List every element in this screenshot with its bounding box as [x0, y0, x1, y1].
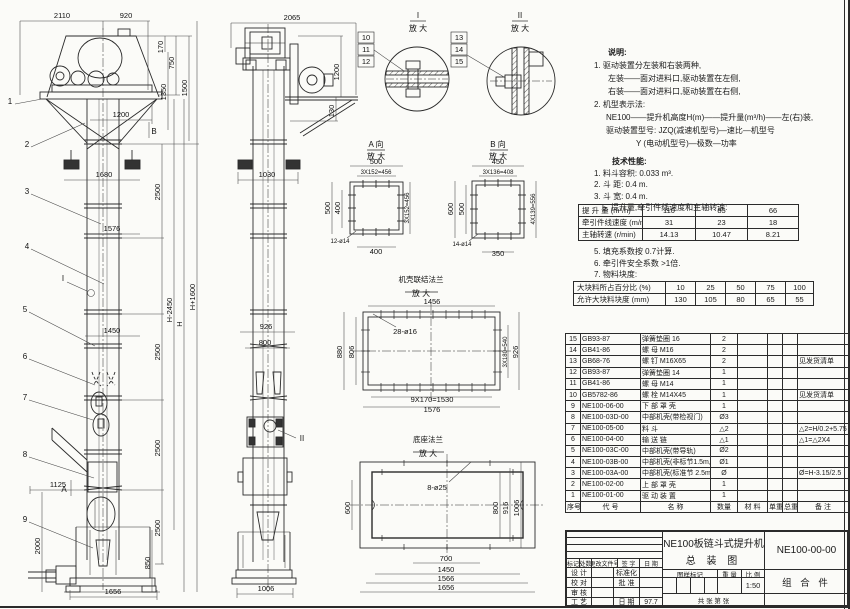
title-block: 标记 处数 更改文件号 签 字 日 期 设 计 标准化 校 对 批 准 审 核 … — [565, 530, 848, 606]
svg-text:400: 400 — [333, 202, 342, 215]
table-cell: 允许大块料块度 (mm) — [574, 294, 666, 306]
table-row: 10GB5782-86螺 栓 M14X451见发货清单 — [566, 389, 849, 400]
svg-text:600: 600 — [343, 502, 352, 515]
svg-text:14: 14 — [455, 45, 463, 54]
table-cell: NE100-01-00 — [581, 490, 641, 501]
note-line: 2. 机型表示法: — [572, 98, 813, 111]
table-cell: 弹簧垫圈 14 — [641, 367, 711, 378]
table-cell — [798, 412, 849, 423]
svg-text:1006: 1006 — [512, 500, 521, 517]
note-line: 右装——面对进料口,驱动装置在右侧, — [572, 85, 813, 98]
svg-text:450: 450 — [492, 157, 505, 166]
table-cell — [738, 345, 768, 356]
svg-text:750: 750 — [167, 57, 176, 70]
svg-text:400: 400 — [370, 247, 383, 256]
table-cell — [738, 457, 768, 468]
svg-text:2110: 2110 — [54, 11, 70, 20]
svg-text:1656: 1656 — [438, 583, 455, 592]
table-cell — [768, 345, 783, 356]
svg-text:12: 12 — [362, 57, 370, 66]
table-row: 主轴转速 (r/min)14.1310.478.21 — [579, 229, 799, 241]
table-cell: 105 — [696, 294, 726, 306]
table-cell: 9 — [566, 401, 581, 412]
svg-text:I: I — [62, 274, 64, 283]
col-header: 总重 — [783, 501, 798, 512]
svg-text:1200: 1200 — [113, 110, 130, 119]
table-cell — [798, 367, 849, 378]
svg-text:13: 13 — [455, 33, 463, 42]
table-cell: 14.13 — [643, 229, 696, 241]
table-row: 1NE100-01-00驱 动 装 置1 — [566, 490, 849, 501]
table-cell: 下 部 罩 壳 — [641, 401, 711, 412]
specs-heading: 技术性能: — [572, 156, 727, 168]
table-cell: Ø3 — [711, 412, 738, 423]
table-cell: 18 — [748, 217, 799, 229]
table-row: 提 升 量 (m³/h)1108566 — [579, 205, 799, 217]
col-header: 名 称 — [641, 501, 711, 512]
svg-text:130: 130 — [327, 105, 336, 118]
table-cell — [783, 479, 798, 490]
table-cell: 中部机壳(带检视门) — [641, 412, 711, 423]
speed-table: 提 升 量 (m³/h)1108566牵引件线速度 (m/min)312318主… — [578, 204, 799, 241]
table-cell: 螺 母 M14 — [641, 378, 711, 389]
table-cell: 中部机壳(标准节 2.5m) — [641, 468, 711, 479]
table-row: 13GB68-76螺 钉 M16X652见发货清单 — [566, 356, 849, 367]
svg-text:A 向: A 向 — [368, 139, 383, 149]
sheet-border-bottom — [0, 606, 850, 608]
table-cell: 2 — [711, 334, 738, 345]
svg-text:500: 500 — [323, 202, 332, 215]
stamp-box — [690, 577, 705, 594]
table-cell — [738, 367, 768, 378]
table-cell — [783, 412, 798, 423]
col-header: 代 号 — [581, 501, 641, 512]
note-line: 5. 填充系数按 0.7计算. — [594, 246, 680, 258]
table-cell: 主轴转速 (r/min) — [579, 229, 643, 241]
note-line: 驱动装置型号: JZQ(减速机型号)—速比—机型号 — [572, 124, 813, 137]
view-b-labels: B 向 放 大 450 3X136=408 600 500 4X139=556 … — [446, 139, 537, 258]
table-cell: 弹簧垫圈 16 — [641, 334, 711, 345]
svg-text:806: 806 — [347, 346, 356, 359]
table-cell: 1 — [711, 389, 738, 400]
svg-text:3X180=540: 3X180=540 — [503, 336, 509, 368]
svg-text:3X152=456: 3X152=456 — [405, 192, 411, 224]
table-cell: GB68-76 — [581, 356, 641, 367]
svg-text:B: B — [151, 127, 156, 136]
table-cell: 1 — [711, 401, 738, 412]
table-cell: 中部机壳(非标节1.5m,1m) — [641, 457, 711, 468]
svg-text:5: 5 — [23, 305, 28, 314]
table-cell: 13 — [566, 356, 581, 367]
table-cell — [768, 468, 783, 479]
table-cell: GB41-86 — [581, 345, 641, 356]
table-cell: 螺 母 M16 — [641, 345, 711, 356]
table-cell: 11 — [566, 378, 581, 389]
table-row: 6NE100-04-00输 送 链△1△1=△2X4 — [566, 434, 849, 445]
note-line: Y (电动机型号)—极数—功率 — [572, 137, 813, 150]
table-cell — [798, 457, 849, 468]
parts-list-table: 15GB93-87弹簧垫圈 16214GB41-86螺 母 M16213GB68… — [565, 333, 849, 513]
svg-text:350: 350 — [492, 249, 505, 258]
table-cell — [783, 457, 798, 468]
table-cell — [783, 434, 798, 445]
product-name: NE100板链斗式提升机 — [663, 535, 764, 550]
svg-text:放 大: 放 大 — [419, 448, 437, 458]
table-row: 11GB41-86螺 母 M141 — [566, 378, 849, 389]
svg-text:10: 10 — [362, 33, 370, 42]
table-cell — [798, 401, 849, 412]
svg-text:1576: 1576 — [104, 224, 121, 233]
svg-text:800: 800 — [259, 338, 272, 347]
table-cell: 130 — [666, 294, 696, 306]
svg-text:4: 4 — [25, 242, 30, 251]
stamp-box — [704, 577, 718, 594]
table-row: 14GB41-86螺 母 M162 — [566, 345, 849, 356]
table-cell: 2 — [711, 356, 738, 367]
table-cell: 50 — [726, 282, 756, 294]
table-cell: 31 — [643, 217, 696, 229]
detail-i-labels: I 放 大 10 11 12 — [362, 11, 427, 66]
note-line: 7. 物料块度: — [594, 269, 680, 281]
table-cell — [738, 389, 768, 400]
drawing-number: NE100-00-00 — [764, 531, 849, 570]
side-view-linework — [232, 24, 358, 592]
svg-text:1450: 1450 — [104, 326, 121, 335]
table-cell — [783, 378, 798, 389]
svg-text:1030: 1030 — [259, 170, 276, 179]
table-row: 3NE100-03A-00中部机壳(标准节 2.5m)ØØ=H-3.15/2.5 — [566, 468, 849, 479]
table-cell — [738, 401, 768, 412]
table-cell: 23 — [696, 217, 748, 229]
table-cell — [768, 412, 783, 423]
svg-text:3: 3 — [25, 187, 30, 196]
svg-text:14-ø14: 14-ø14 — [452, 242, 472, 248]
table-cell — [783, 401, 798, 412]
table-cell — [798, 490, 849, 501]
table-cell: GB5782-86 — [581, 389, 641, 400]
table-cell: NE100-05-00 — [581, 423, 641, 434]
svg-text:放 大: 放 大 — [511, 23, 529, 33]
svg-text:700: 700 — [440, 554, 453, 563]
table-cell — [768, 389, 783, 400]
table-cell: 中部机壳(带导轨) — [641, 445, 711, 456]
svg-text:28-ø16: 28-ø16 — [393, 327, 417, 336]
lump-size-table: 大块料所占百分比 (%)10255075100允许大块料块度 (mm)13010… — [573, 281, 814, 306]
table-cell — [738, 356, 768, 367]
spec-line: 2. 斗 距: 0.4 m. — [572, 179, 727, 191]
svg-text:7: 7 — [23, 393, 28, 402]
table-cell: Ø=H-3.15/2.5 — [798, 468, 849, 479]
table-cell: 牵引件线速度 (m/min) — [579, 217, 643, 229]
table-cell: 15 — [566, 334, 581, 345]
col-header: 备 注 — [798, 501, 849, 512]
table-cell — [768, 457, 783, 468]
table-cell — [783, 356, 798, 367]
svg-text:926: 926 — [260, 322, 273, 331]
table-cell: 螺 栓 M14X45 — [641, 389, 711, 400]
front-view-balloons: 1 2 3 4 5 6 7 8 9 — [8, 97, 30, 524]
table-cell — [768, 479, 783, 490]
svg-text:4X139=556: 4X139=556 — [531, 193, 537, 225]
table-cell: Ø1 — [711, 457, 738, 468]
table-cell — [798, 378, 849, 389]
sheet-border-right — [844, 0, 845, 609]
table-cell: 1 — [711, 479, 738, 490]
empty-cell — [764, 593, 849, 607]
table-cell: 10 — [666, 282, 696, 294]
table-cell: 100 — [786, 282, 814, 294]
svg-text:920: 920 — [120, 11, 133, 20]
table-cell: NE100-03D-00 — [581, 412, 641, 423]
svg-text:1350: 1350 — [159, 84, 168, 101]
drawing-sheet: 2110 920 170 750 1350 1500 1200 1680 157… — [0, 0, 850, 609]
spec-line: 3. 斗 宽: 0.4 m. — [572, 191, 727, 203]
svg-text:底座法兰: 底座法兰 — [413, 434, 443, 444]
note-line: 6. 牵引件安全系数 >1倍. — [594, 258, 680, 270]
svg-text:15: 15 — [455, 57, 463, 66]
table-cell — [738, 423, 768, 434]
table-cell: 65 — [756, 294, 786, 306]
svg-text:850: 850 — [143, 557, 152, 570]
table-cell — [768, 378, 783, 389]
table-cell: △1=△2X4 — [798, 434, 849, 445]
view-a-labels: A 向 放 大 500 3X152=456 500 400 3X152=456 … — [323, 139, 411, 256]
svg-text:3X152=456: 3X152=456 — [361, 170, 393, 176]
table-cell: NE100-06-00 — [581, 401, 641, 412]
svg-text:800: 800 — [491, 502, 500, 515]
svg-text:9: 9 — [23, 515, 28, 524]
table-row: 允许大块料块度 (mm)130105806555 — [574, 294, 814, 306]
table-cell — [768, 367, 783, 378]
table-cell: 85 — [696, 205, 748, 217]
table-cell — [783, 445, 798, 456]
table-row: 2NE100-02-00上 部 罩 壳1 — [566, 479, 849, 490]
svg-text:2065: 2065 — [284, 13, 301, 22]
table-cell: 螺 钉 M16X65 — [641, 356, 711, 367]
table-cell: 6 — [566, 434, 581, 445]
svg-text:1006: 1006 — [258, 584, 275, 593]
sheet-count: 共 张 第 张 — [662, 593, 765, 607]
table-cell: 7 — [566, 423, 581, 434]
note-line: 1. 驱动装置分左装和右装两种, — [572, 59, 813, 72]
table-cell — [783, 490, 798, 501]
notes-block: 说明: 1. 驱动装置分左装和右装两种, 左装——面对进料口,驱动装置在左侧, … — [572, 46, 813, 150]
table-cell: △2=H/0.2+5.75 — [798, 423, 849, 434]
table-cell: 75 — [756, 282, 786, 294]
table-cell: 10 — [566, 389, 581, 400]
table-cell: NE100-03C-00 — [581, 445, 641, 456]
svg-text:8-ø25: 8-ø25 — [427, 483, 447, 492]
table-cell: GB41-86 — [581, 378, 641, 389]
svg-text:H+1600: H+1600 — [188, 284, 197, 310]
table-cell — [798, 479, 849, 490]
svg-text:H-2450: H-2450 — [165, 298, 174, 323]
svg-text:II: II — [300, 434, 304, 443]
table-cell: 5 — [566, 445, 581, 456]
table-cell: 110 — [643, 205, 696, 217]
table-cell: GB93-87 — [581, 334, 641, 345]
base-view-labels: 底座法兰 放 大 8-ø25 600 800 916 1006 700 1450… — [343, 434, 521, 592]
table-cell — [798, 445, 849, 456]
table-cell — [783, 389, 798, 400]
detail-ii-labels: II 放 大 13 14 15 — [455, 11, 529, 66]
svg-text:B 向: B 向 — [490, 139, 506, 149]
table-cell: 上 部 罩 壳 — [641, 479, 711, 490]
table-cell: 驱 动 装 置 — [641, 490, 711, 501]
table-row: 5NE100-03C-00中部机壳(带导轨)Ø2 — [566, 445, 849, 456]
svg-text:A: A — [61, 485, 67, 494]
table-cell: NE100-03A-00 — [581, 468, 641, 479]
svg-text:3X136=408: 3X136=408 — [483, 170, 515, 176]
col-header: 单重 — [768, 501, 783, 512]
spec-line: 1. 料斗容积: 0.033 m³. — [572, 168, 727, 180]
table-cell — [738, 490, 768, 501]
table-row: 12GB93-87弹簧垫圈 141 — [566, 367, 849, 378]
table-row: 8NE100-03D-00中部机壳(带检视门)Ø3 — [566, 412, 849, 423]
table-cell — [738, 334, 768, 345]
table-cell: Ø — [711, 468, 738, 479]
table-cell — [768, 356, 783, 367]
svg-text:9X170=1530: 9X170=1530 — [411, 395, 454, 404]
table-cell: NE100-02-00 — [581, 479, 641, 490]
table-cell: 1 — [566, 490, 581, 501]
scale-value: 1:50 — [741, 577, 765, 594]
table-cell: 14 — [566, 345, 581, 356]
weight-value — [717, 577, 742, 594]
table-row: 7NE100-05-00料 斗△2△2=H/0.2+5.75 — [566, 423, 849, 434]
stamp-box — [676, 577, 691, 594]
svg-text:放 大: 放 大 — [409, 23, 427, 33]
svg-text:1456: 1456 — [424, 297, 441, 306]
table-cell — [768, 434, 783, 445]
table-cell: 66 — [748, 205, 799, 217]
table-cell: △2 — [711, 423, 738, 434]
svg-text:1: 1 — [8, 97, 13, 106]
table-cell — [738, 412, 768, 423]
table-cell: 12 — [566, 367, 581, 378]
svg-text:2500: 2500 — [153, 520, 162, 537]
table-cell: 3 — [566, 468, 581, 479]
table-cell: NE100-03B-00 — [581, 457, 641, 468]
table-cell: 输 送 链 — [641, 434, 711, 445]
note-line: 左装——面对进料口,驱动装置在左侧, — [572, 72, 813, 85]
table-cell — [768, 401, 783, 412]
svg-text:II: II — [518, 11, 522, 20]
detail-ii — [451, 21, 555, 115]
col-header: 材 料 — [738, 501, 768, 512]
table-cell — [783, 345, 798, 356]
table-cell: 料 斗 — [641, 423, 711, 434]
svg-text:880: 880 — [335, 346, 344, 359]
table-cell: 提 升 量 (m³/h) — [579, 205, 643, 217]
table-cell — [768, 334, 783, 345]
flange-view-linework — [344, 292, 519, 407]
svg-text:170: 170 — [156, 41, 165, 54]
table-cell: 8 — [566, 412, 581, 423]
parts-list-header-row: 序号 代 号 名 称 数量 材 料 单重 总重 备 注 — [566, 501, 849, 512]
table-cell — [798, 334, 849, 345]
svg-text:11: 11 — [362, 45, 370, 54]
table-cell: 1 — [711, 367, 738, 378]
table-cell: GB93-87 — [581, 367, 641, 378]
table-cell: NE100-04-00 — [581, 434, 641, 445]
svg-text:1656: 1656 — [105, 587, 122, 596]
extra-notes-block: 5. 填充系数按 0.7计算. 6. 牵引件安全系数 >1倍. 7. 物料块度: — [594, 246, 680, 281]
svg-text:12-ø14: 12-ø14 — [330, 239, 350, 245]
table-cell — [783, 334, 798, 345]
sheet-name: 总 装 图 — [686, 552, 742, 567]
table-cell: 10.47 — [696, 229, 748, 241]
svg-text:1566: 1566 — [438, 574, 455, 583]
svg-text:2000: 2000 — [33, 538, 42, 555]
svg-text:1500: 1500 — [180, 80, 189, 97]
table-cell: 55 — [786, 294, 814, 306]
table-cell — [738, 468, 768, 479]
front-view-linework — [28, 28, 162, 592]
col-header: 序号 — [566, 501, 581, 512]
svg-text:H: H — [175, 321, 184, 326]
table-row: 9NE100-06-00下 部 罩 壳1 — [566, 401, 849, 412]
table-cell: 2 — [566, 479, 581, 490]
stamp-box — [662, 577, 677, 594]
svg-text:600: 600 — [446, 203, 455, 216]
svg-text:2500: 2500 — [153, 344, 162, 361]
drawing-canvas: 2110 920 170 750 1350 1500 1200 1680 157… — [0, 0, 562, 609]
svg-text:500: 500 — [457, 203, 466, 216]
svg-text:机壳联结法兰: 机壳联结法兰 — [399, 274, 444, 284]
table-cell — [798, 345, 849, 356]
table-cell: △1 — [711, 434, 738, 445]
table-cell: 见发货清单 — [798, 356, 849, 367]
svg-text:2: 2 — [25, 140, 30, 149]
detail-i — [358, 21, 449, 111]
table-cell: 8.21 — [748, 229, 799, 241]
table-cell: 4 — [566, 457, 581, 468]
table-cell — [738, 445, 768, 456]
table-cell: 1 — [711, 378, 738, 389]
svg-text:1450: 1450 — [438, 565, 455, 574]
table-cell — [768, 445, 783, 456]
table-row: 牵引件线速度 (m/min)312318 — [579, 217, 799, 229]
table-row: 大块料所占百分比 (%)10255075100 — [574, 282, 814, 294]
table-cell: 2 — [711, 345, 738, 356]
assembly-label: 组 合 件 — [764, 569, 849, 594]
table-row: 4NE100-03B-00中部机壳(非标节1.5m,1m)Ø1 — [566, 457, 849, 468]
table-cell — [783, 423, 798, 434]
table-cell: 25 — [696, 282, 726, 294]
col-header: 数量 — [711, 501, 738, 512]
table-cell — [738, 434, 768, 445]
table-cell — [738, 378, 768, 389]
svg-text:I: I — [417, 11, 419, 20]
svg-text:926: 926 — [511, 346, 520, 359]
svg-text:1680: 1680 — [96, 170, 113, 179]
table-cell: 1 — [711, 490, 738, 501]
notes-heading: 说明: — [572, 46, 813, 59]
table-cell: 见发货清单 — [798, 389, 849, 400]
table-cell — [783, 367, 798, 378]
table-cell: 80 — [726, 294, 756, 306]
drawing-title: NE100板链斗式提升机 总 装 图 — [662, 531, 765, 570]
svg-text:1576: 1576 — [424, 405, 441, 414]
table-cell — [768, 423, 783, 434]
table-cell — [738, 479, 768, 490]
table-row: 15GB93-87弹簧垫圈 162 — [566, 334, 849, 345]
note-line: NE100——提升机高度H(m)——提升量(m³/h)——左(右)装, — [572, 111, 813, 124]
svg-text:8: 8 — [23, 450, 28, 459]
svg-text:1200: 1200 — [332, 64, 341, 81]
svg-text:6: 6 — [23, 352, 28, 361]
